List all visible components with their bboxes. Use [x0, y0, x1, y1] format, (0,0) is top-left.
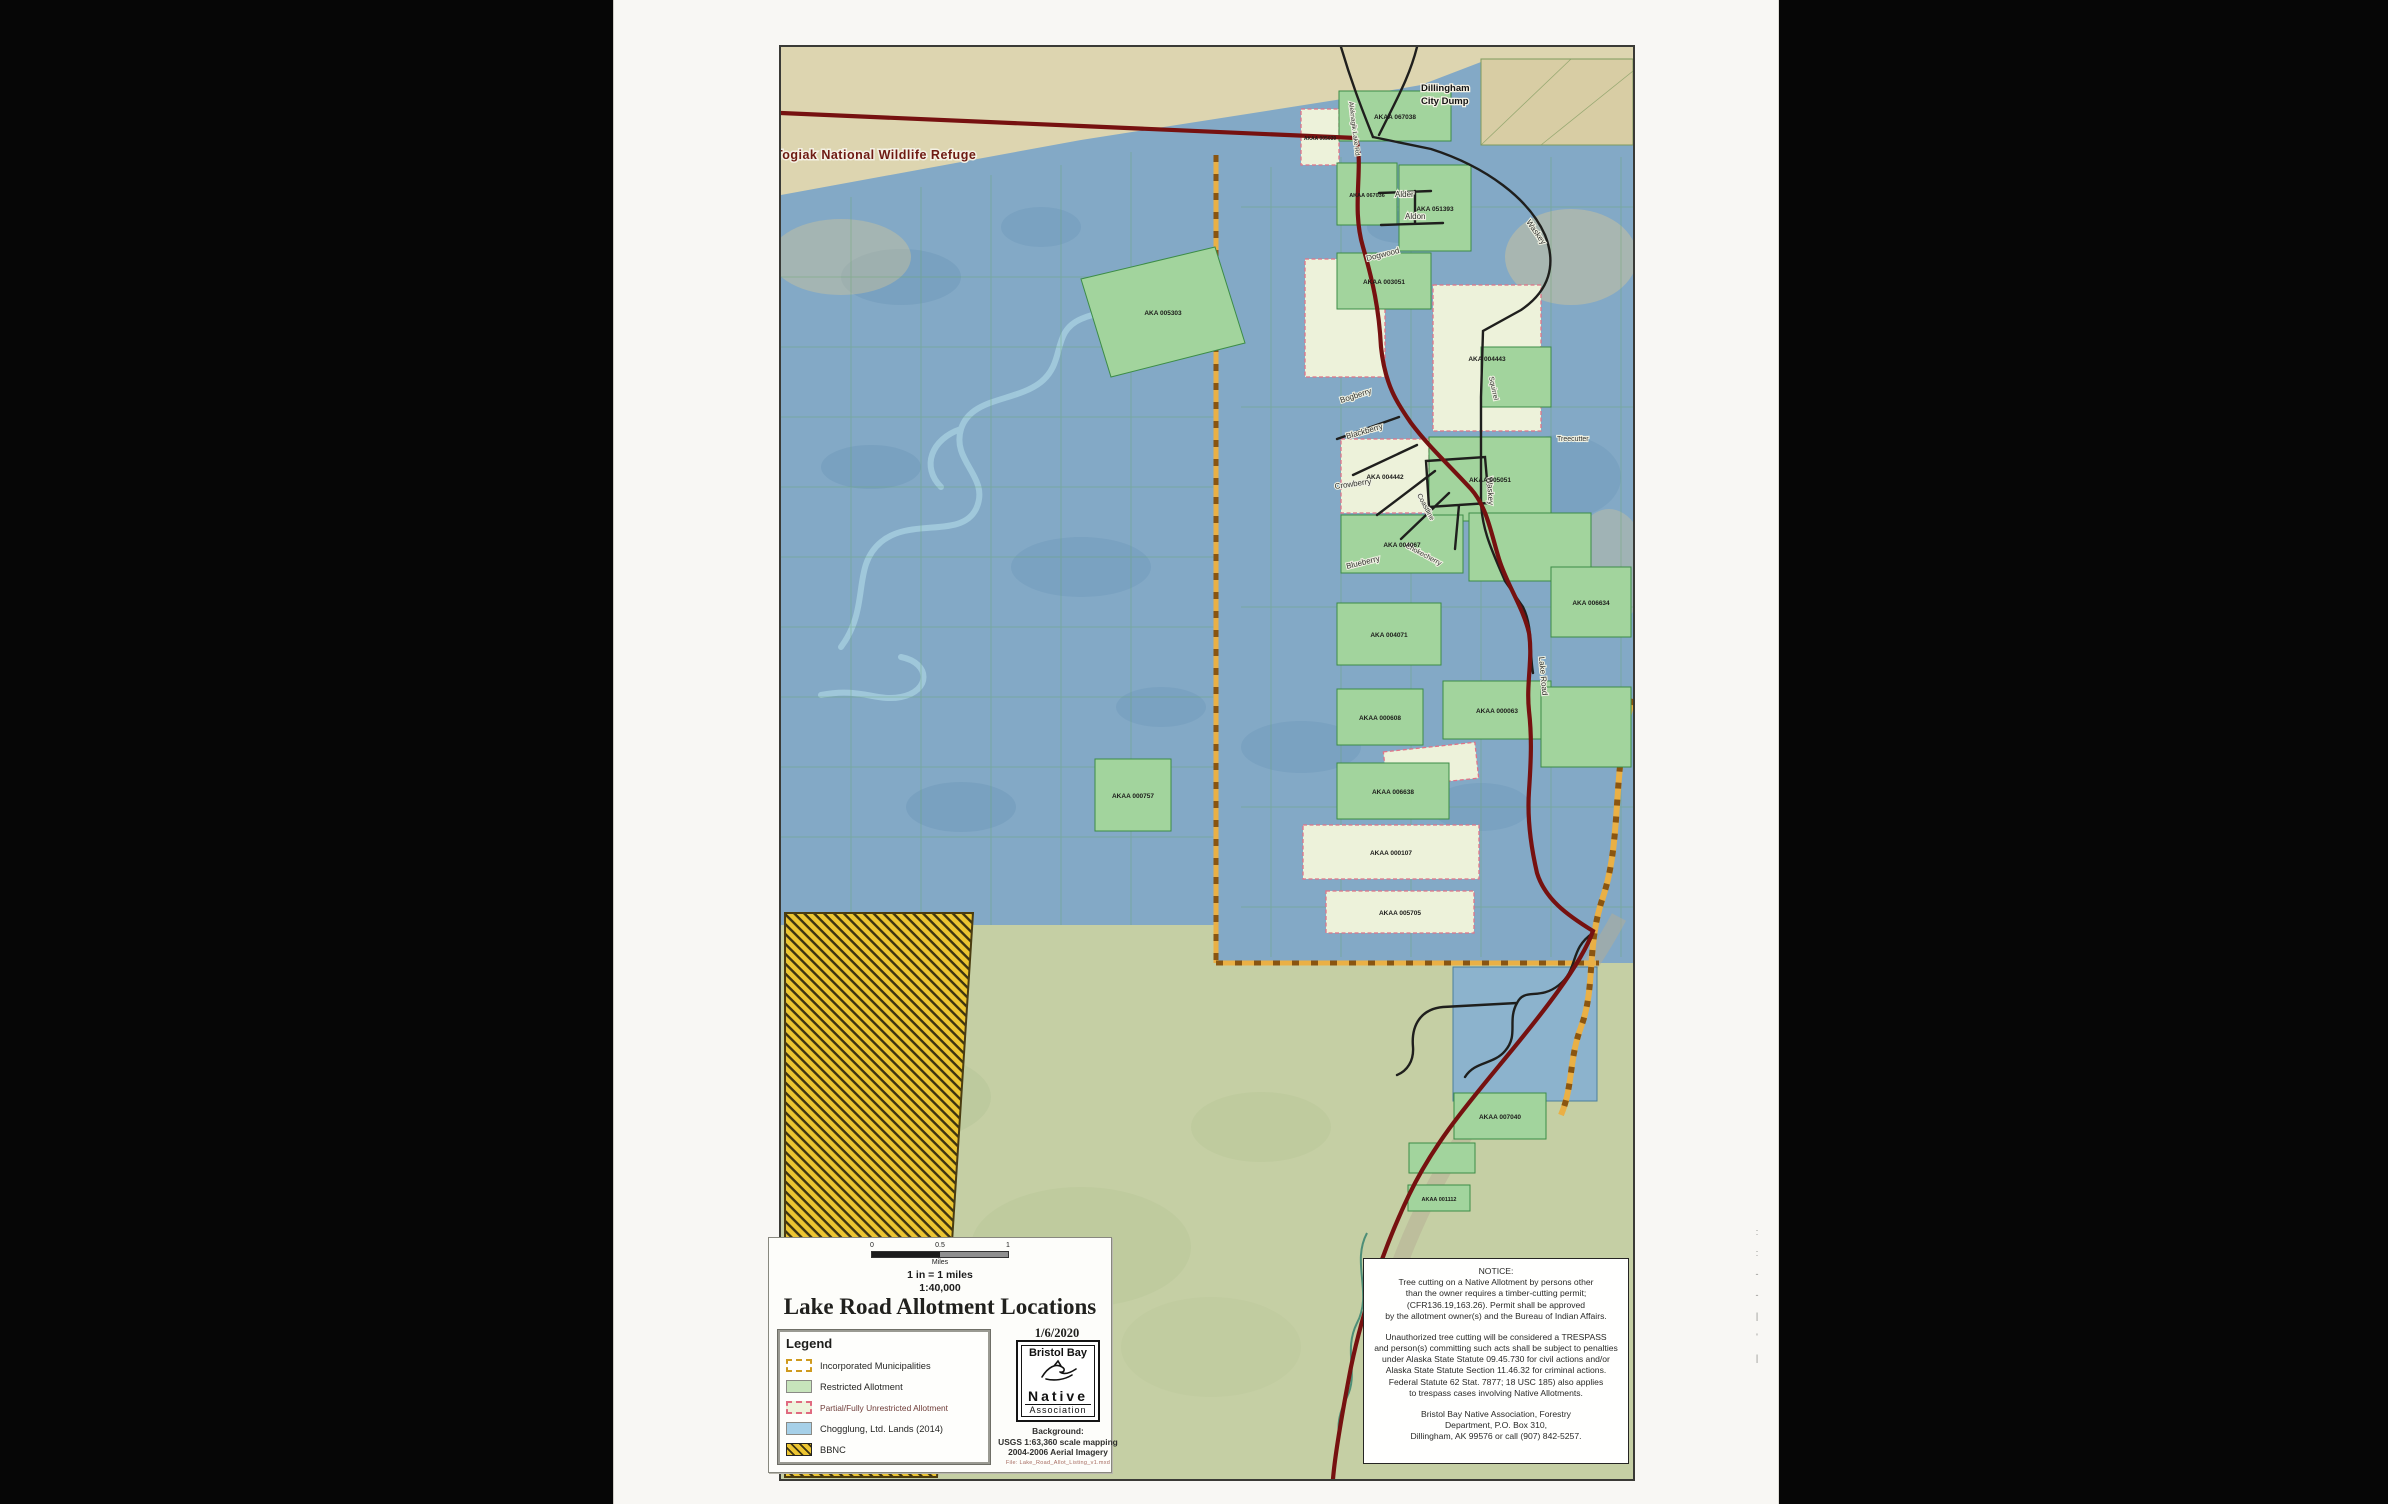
- bbna-logo: Bristol Bay Native Association: [1016, 1340, 1100, 1422]
- bbnc-swatch: [786, 1443, 812, 1456]
- unrestricted-allotment-swatch: [786, 1401, 812, 1414]
- svg-text:Alder: Alder: [1395, 190, 1414, 199]
- scale-tick: 1: [1006, 1242, 1010, 1249]
- scanned-page: Togiak National Wildlife Refuge Dillingh…: [613, 0, 1779, 1504]
- map-title: Lake Road Allotment Locations: [769, 1294, 1111, 1320]
- margin-mark: -: [1750, 1285, 1764, 1306]
- margin-mark: |: [1750, 1306, 1764, 1327]
- svg-text:AKAA 005705: AKAA 005705: [1379, 910, 1421, 917]
- svg-text:AKA 005303: AKA 005303: [1144, 310, 1182, 317]
- svg-text:AKAA 005039: AKAA 005039: [1304, 136, 1337, 142]
- city-dump-parcel: [1481, 59, 1633, 145]
- legend-item-label: Chogglung, Ltd. Lands (2014): [820, 1424, 943, 1434]
- background-note: Background: USGS 1:63,360 scale mapping …: [979, 1426, 1137, 1458]
- legend-item-bbnc: BBNC: [786, 1439, 982, 1460]
- logo-text-native: Native: [1018, 1388, 1098, 1404]
- scale-tick: 0: [870, 1242, 874, 1249]
- legend-item-label: Incorporated Municipalities: [820, 1361, 931, 1371]
- scale-bar-segment: [940, 1252, 1008, 1257]
- svg-text:AKAA 000608: AKAA 000608: [1359, 715, 1401, 722]
- svg-text:Treecutter: Treecutter: [1557, 436, 1589, 443]
- legend-item-restricted: Restricted Allotment: [786, 1376, 982, 1397]
- margin-marks: : : - - | ' |: [1750, 1222, 1764, 1369]
- logo-text-top: Bristol Bay: [1018, 1347, 1098, 1359]
- svg-text:AKA 006634: AKA 006634: [1572, 600, 1610, 607]
- map-date: 1/6/2020: [1009, 1326, 1105, 1341]
- svg-text:AKAA 003051: AKAA 003051: [1363, 279, 1405, 286]
- margin-mark: ': [1750, 1327, 1764, 1348]
- logo-bird-icon: [1036, 1359, 1080, 1385]
- margin-mark: -: [1750, 1264, 1764, 1285]
- svg-text:AKA 051393: AKA 051393: [1416, 206, 1454, 213]
- notice-paragraph: NOTICE: Tree cutting on a Native Allotme…: [1368, 1266, 1624, 1322]
- svg-text:AKA 004067: AKA 004067: [1383, 542, 1421, 549]
- chogglung-lands-swatch: [786, 1422, 812, 1435]
- file-note: File: Lake_Road_Allot_Listing_v1.mxd: [979, 1460, 1137, 1466]
- restricted-allotment-swatch: [786, 1380, 812, 1393]
- svg-text:Aldon: Aldon: [1405, 212, 1425, 221]
- svg-text:City Dump: City Dump: [1421, 96, 1469, 107]
- legend-item-label: BBNC: [820, 1445, 846, 1455]
- legend-item-label: Restricted Allotment: [820, 1382, 903, 1392]
- scale-bar-segment: [872, 1252, 940, 1257]
- scale-ratio-text: 1:40,000: [769, 1282, 1111, 1294]
- margin-mark: :: [1750, 1222, 1764, 1243]
- scale-tick: 0.5: [935, 1242, 945, 1249]
- svg-text:AKAA 007040: AKAA 007040: [1479, 1114, 1521, 1121]
- svg-text:AKAA 000107: AKAA 000107: [1370, 850, 1412, 857]
- legend-item-label: Partial/Fully Unrestricted Allotment: [820, 1403, 948, 1413]
- margin-mark: :: [1750, 1243, 1764, 1264]
- svg-text:AKAA 067038: AKAA 067038: [1374, 114, 1416, 121]
- logo-text-association: Association: [1025, 1404, 1091, 1415]
- legend-item-unrestricted: Partial/Fully Unrestricted Allotment: [786, 1397, 982, 1418]
- svg-text:AKAA 067036: AKAA 067036: [1349, 193, 1385, 199]
- title-block: 0 0.5 1 Miles 1 in = 1 miles 1:40,000 La…: [768, 1237, 1112, 1473]
- svg-text:AKA 004071: AKA 004071: [1370, 632, 1408, 639]
- svg-text:AKA 004442: AKA 004442: [1366, 474, 1404, 481]
- svg-text:AKAA 000757: AKAA 000757: [1112, 793, 1154, 800]
- refuge-label: Togiak National Wildlife Refuge: [781, 148, 976, 162]
- svg-text:AKAA 001112: AKAA 001112: [1422, 1197, 1457, 1203]
- svg-text:Dillingham: Dillingham: [1421, 83, 1470, 94]
- scale-unit-label: Miles: [769, 1259, 1111, 1266]
- svg-text:AKA 004443: AKA 004443: [1468, 356, 1506, 363]
- legend-item-incorporated: Incorporated Municipalities: [786, 1355, 982, 1376]
- legend-heading: Legend: [786, 1336, 982, 1351]
- margin-mark: |: [1750, 1348, 1764, 1369]
- svg-text:AKAA 006638: AKAA 006638: [1372, 789, 1414, 796]
- scale-equivalence-text: 1 in = 1 miles: [769, 1269, 1111, 1281]
- legend-item-chogglung: Chogglung, Ltd. Lands (2014): [786, 1418, 982, 1439]
- scale-bar: 0 0.5 1 Miles 1 in = 1 miles 1:40,000: [769, 1242, 1111, 1294]
- incorporated-municipalities-swatch: [786, 1359, 812, 1372]
- svg-text:AKAA 000063: AKAA 000063: [1476, 708, 1518, 715]
- notice-box: NOTICE: Tree cutting on a Native Allotme…: [1363, 1258, 1629, 1464]
- legend-box: Legend Incorporated Municipalities Restr…: [778, 1330, 990, 1464]
- notice-paragraph: Unauthorized tree cutting will be consid…: [1368, 1332, 1624, 1399]
- notice-paragraph: Bristol Bay Native Association, Forestry…: [1368, 1409, 1624, 1443]
- svg-text:AKAA 005051: AKAA 005051: [1469, 477, 1511, 484]
- scan-photo-background: Togiak National Wildlife Refuge Dillingh…: [0, 0, 2388, 1504]
